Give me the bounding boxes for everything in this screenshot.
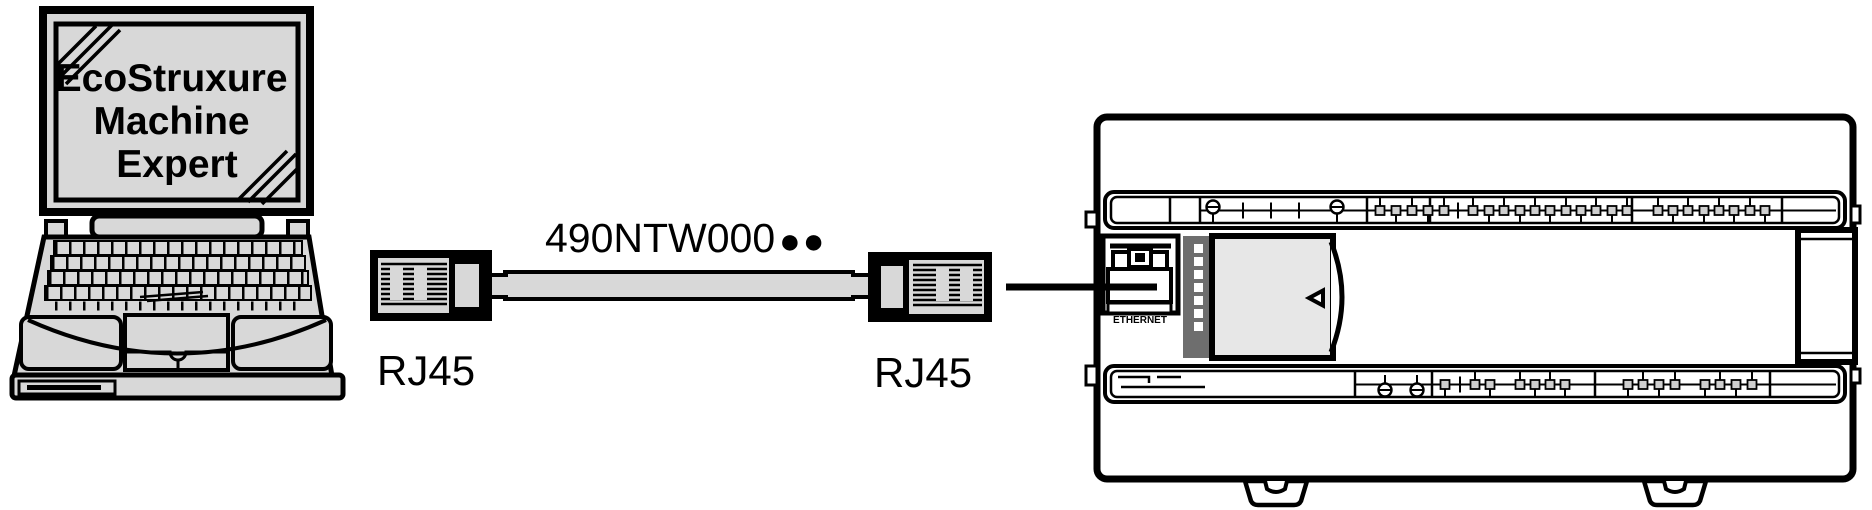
din-clip-right	[1644, 481, 1706, 505]
laptop-computer: EcoStruxure Machine Expert	[12, 10, 343, 398]
screen-line-3: Expert	[116, 143, 237, 186]
status-led-strip	[1183, 236, 1212, 358]
rj45-connector-right	[851, 256, 988, 318]
connection-diagram: EcoStruxure Machine Expert	[0, 0, 1872, 510]
diagram-canvas: EcoStruxure Machine Expert	[0, 0, 1872, 510]
right-access-door	[1798, 230, 1855, 362]
led-windows	[1194, 244, 1203, 331]
ethernet-port	[1103, 236, 1178, 313]
cable-assembly: 490NTW000 ●● RJ45 RJ45	[374, 215, 988, 396]
ethernet-port-label: ETHERNET	[1113, 315, 1167, 326]
top-terminal-strip	[1105, 192, 1845, 228]
screen-line-1: EcoStruxure	[56, 57, 288, 100]
din-clip-left	[1245, 481, 1307, 505]
rj45-label-right: RJ45	[874, 349, 972, 396]
laptop-palmrest	[21, 315, 331, 370]
rj45-label-left: RJ45	[377, 347, 475, 394]
ethernet-cable	[505, 272, 853, 299]
cable-reference-bullets: ●●	[779, 220, 827, 261]
logic-controller: ETHERNET	[1086, 117, 1860, 505]
bottom-terminal-strip	[1105, 366, 1845, 402]
cartridge-door	[1212, 236, 1342, 358]
laptop-keyboard	[45, 241, 311, 306]
screen-line-2: Machine	[94, 100, 250, 143]
rj45-latch-left	[452, 261, 482, 310]
cable-reference-label: 490NTW000	[545, 215, 775, 261]
rj45-connector-left	[374, 254, 508, 317]
rj45-latch-right	[878, 263, 906, 311]
laptop-hinge	[46, 216, 308, 237]
disk-slot	[19, 381, 115, 394]
